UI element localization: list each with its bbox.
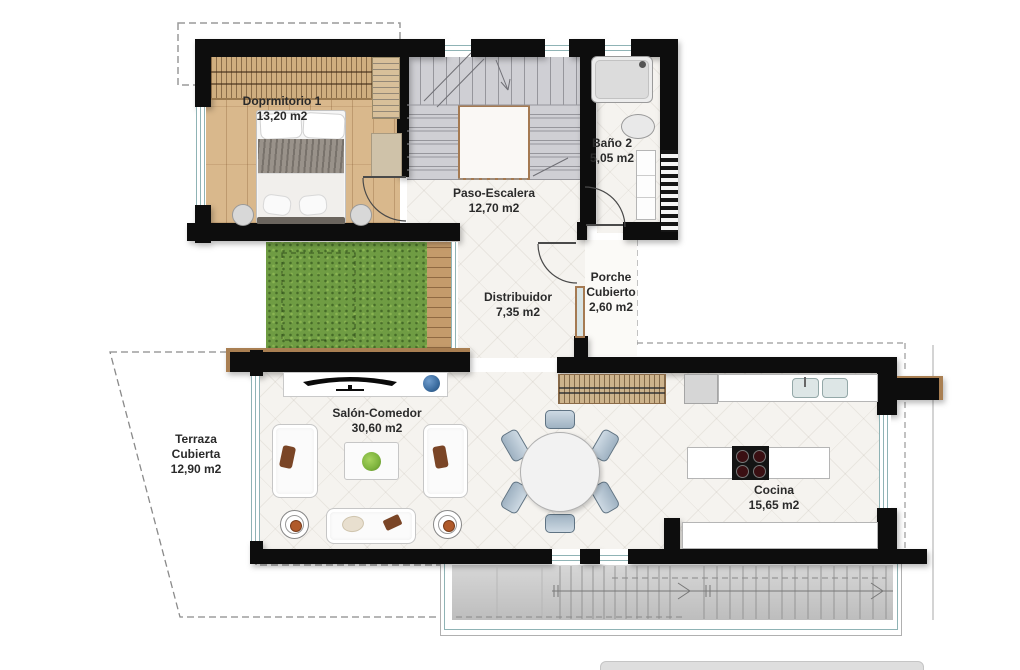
bedside-stool [350, 204, 372, 226]
wall-segment [187, 223, 460, 241]
shelving-icon [372, 57, 400, 119]
cooktop-icon [732, 446, 769, 480]
vase-icon [423, 375, 440, 392]
side-table-icon [280, 510, 309, 539]
room-area: 30,60 m2 [332, 421, 421, 436]
dining-table-icon [520, 432, 600, 512]
room-area: 7,35 m2 [484, 305, 552, 320]
wall-segment [628, 549, 927, 564]
wall-segment [471, 39, 545, 57]
dining-chair [545, 410, 575, 429]
room-label-bano: Baño 2 5,05 m2 [590, 136, 634, 166]
patio-glazing [451, 242, 458, 348]
floor-plan: Doprmitorio 1 13,20 m2 Paso-Escalera 12,… [0, 0, 1020, 670]
wall-segment [664, 518, 680, 549]
room-name: Cubierta [171, 447, 222, 462]
room-label-paso-escalera: Paso-Escalera 12,70 m2 [453, 186, 535, 216]
room-area: 2,60 m2 [586, 300, 635, 315]
sink-faucet [804, 377, 806, 387]
wall-segment [557, 357, 897, 373]
living-sliding-window [600, 549, 628, 564]
wall-segment [580, 549, 600, 564]
room-name: Porche [586, 270, 635, 285]
foot-cushion [298, 194, 328, 217]
wall-segment [253, 549, 552, 564]
bedroom-window [196, 107, 206, 205]
room-area: 15,65 m2 [749, 498, 800, 513]
room-name: Cocina [749, 483, 800, 498]
room-name: Salón-Comedor [332, 406, 421, 421]
room-name: Terraza [171, 432, 222, 447]
room-area: 12,70 m2 [453, 201, 535, 216]
wall-segment [877, 357, 897, 415]
room-area: 5,05 m2 [590, 151, 634, 166]
wall-segment [574, 336, 588, 360]
sofa-icon [326, 508, 416, 544]
burner [736, 465, 749, 478]
closet-niche [371, 133, 402, 177]
room-name: Distribuidor [484, 290, 552, 305]
bathtub-faucet [639, 61, 646, 68]
room-name: Baño 2 [590, 136, 634, 151]
burner [753, 450, 766, 463]
pergola-beam [897, 376, 943, 400]
room-label-cocina: Cocina 15,65 m2 [749, 483, 800, 513]
bathroom-cabinet-icon [636, 150, 656, 220]
kitchen-counter-south [682, 522, 878, 549]
bathtub-icon [591, 56, 653, 103]
room-label-salon: Salón-Comedor 30,60 m2 [332, 406, 421, 436]
bed-bench [257, 217, 345, 224]
bed-throw [258, 139, 344, 173]
double-bed-icon [256, 110, 346, 224]
room-name: Doprmitorio 1 [243, 94, 322, 109]
dining-chair [545, 514, 575, 533]
kitchen-window [879, 415, 891, 508]
bedside-stool [232, 204, 254, 226]
room-label-terraza: Terraza Cubierta 12,90 m2 [171, 432, 222, 477]
side-table-icon [433, 510, 462, 539]
foot-cushion [262, 193, 293, 217]
wall-segment [577, 222, 587, 240]
entrance-side-glazing [575, 286, 585, 338]
wall-vent-grille [661, 150, 678, 232]
room-name: Cubierto [586, 285, 635, 300]
fridge-icon [684, 374, 718, 404]
living-sliding-window [552, 549, 580, 564]
room-area: 12,90 m2 [171, 462, 222, 477]
room-label-dormitorio: Doprmitorio 1 13,20 m2 [243, 94, 322, 124]
walls-layer [0, 0, 1020, 670]
room-name: Paso-Escalera [453, 186, 535, 201]
kitchen-sink-icon [792, 378, 819, 398]
room-label-distribuidor: Distribuidor 7,35 m2 [484, 290, 552, 320]
kitchen-sink-icon [822, 378, 848, 398]
wall-segment [250, 350, 263, 376]
plant-icon [362, 452, 381, 471]
stair-window [545, 39, 569, 57]
room-area: 13,20 m2 [243, 109, 322, 124]
room-label-porche: Porche Cubierto 2,60 m2 [586, 270, 635, 315]
wall-segment [195, 39, 211, 107]
burner [753, 465, 766, 478]
living-room-window [251, 376, 260, 541]
pantry-wardrobe-icon [558, 374, 666, 404]
bathroom-window [605, 39, 631, 57]
stair-window [445, 39, 471, 57]
burner [736, 450, 749, 463]
